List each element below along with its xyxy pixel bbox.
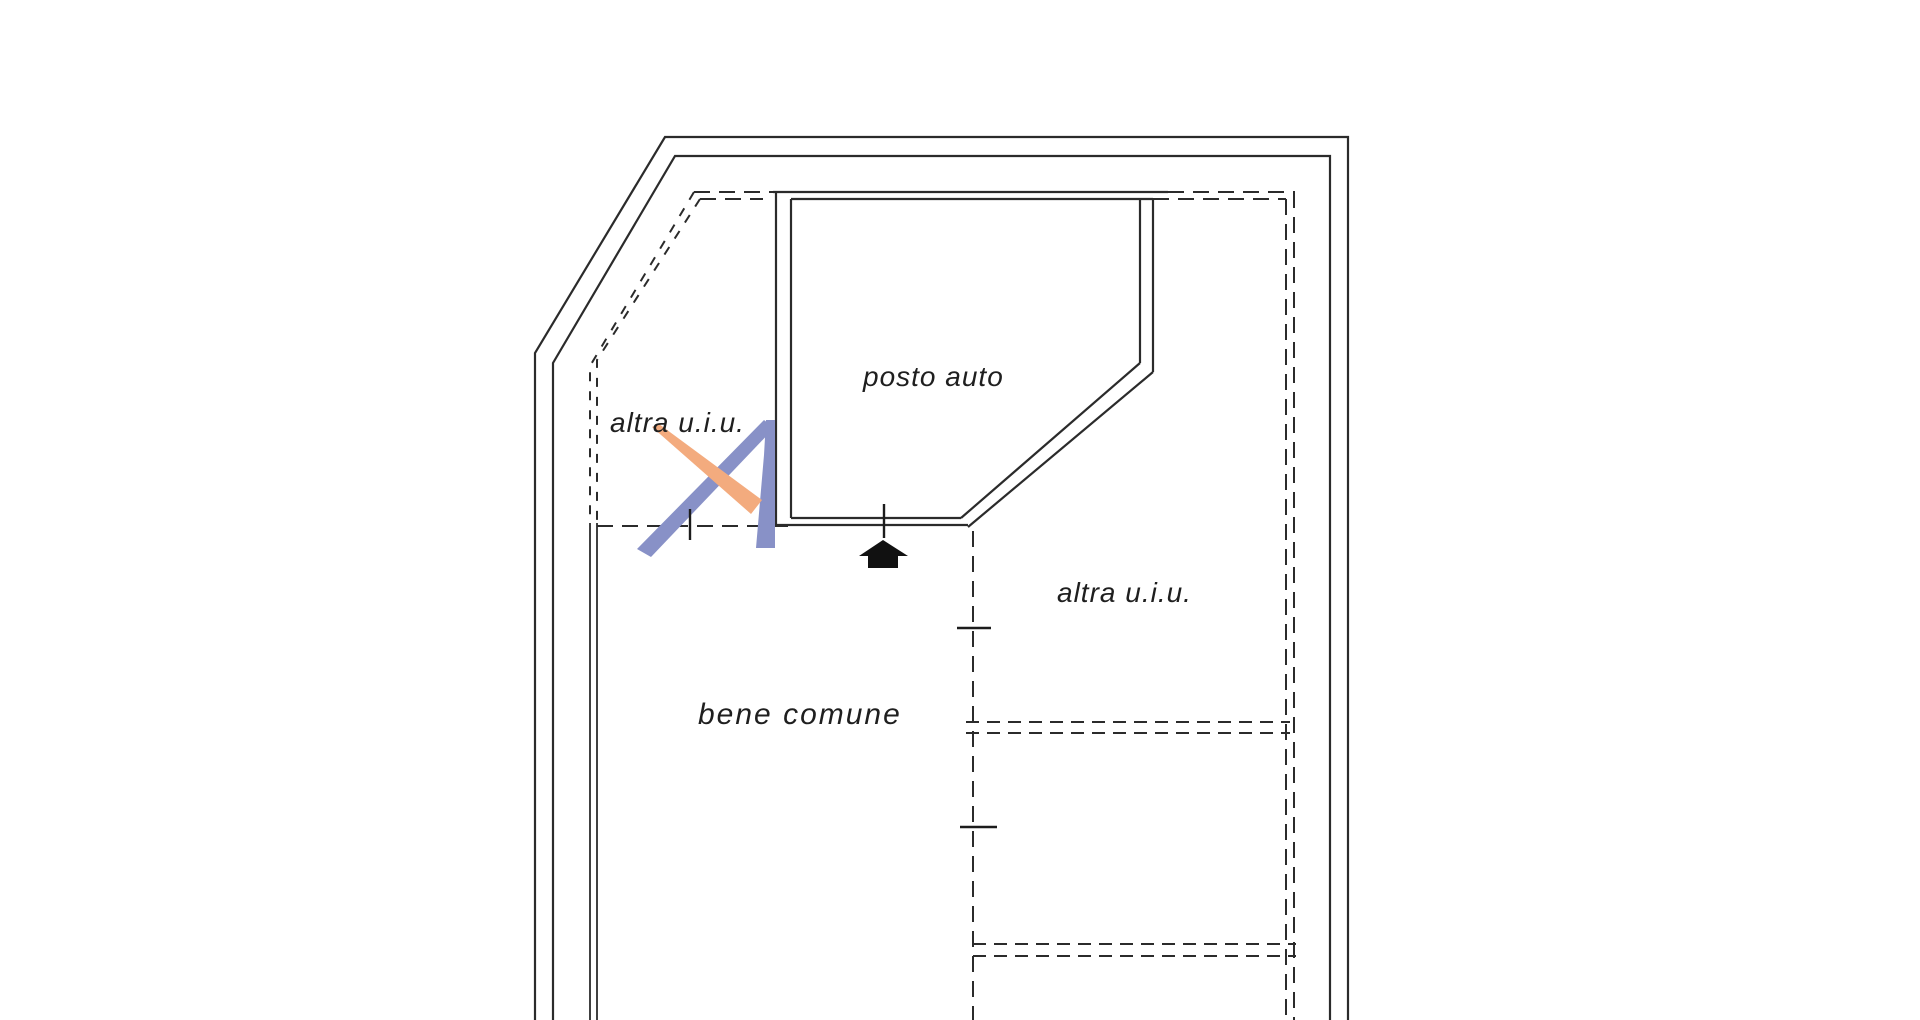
- floor-plan-canvas: altra u.i.u. posto auto altra u.i.u. ben…: [0, 0, 1920, 1020]
- label-altra-uiu-left: altra u.i.u.: [610, 407, 745, 438]
- logo-left-leg: [637, 420, 774, 557]
- outer-wall: [535, 137, 1348, 1020]
- left-unit-boundary: [590, 192, 700, 1020]
- left-boundary-dashed-inner: [597, 199, 700, 523]
- floor-plan-page: altra u.i.u. posto auto altra u.i.u. ben…: [0, 0, 1920, 1020]
- posto-auto-diagonal-outer: [968, 372, 1153, 527]
- right-dashed-boundary: [1286, 192, 1294, 1020]
- watermark-logo: [637, 420, 775, 557]
- left-boundary-dashed-outer: [590, 192, 694, 523]
- boundary-ticks: [690, 504, 997, 827]
- right-area-dividers: [966, 722, 1296, 956]
- outer-wall-inner-line: [553, 156, 1330, 1020]
- outer-wall-outer-line: [535, 137, 1348, 1020]
- label-altra-uiu-right: altra u.i.u.: [1057, 577, 1192, 608]
- label-bene-comune: bene comune: [698, 698, 902, 731]
- entrance-arrow-icon: [859, 540, 908, 568]
- posto-auto-walls: [773, 192, 1168, 527]
- label-posto-auto: posto auto: [862, 361, 1004, 392]
- room-labels: altra u.i.u. posto auto altra u.i.u. ben…: [610, 361, 1192, 731]
